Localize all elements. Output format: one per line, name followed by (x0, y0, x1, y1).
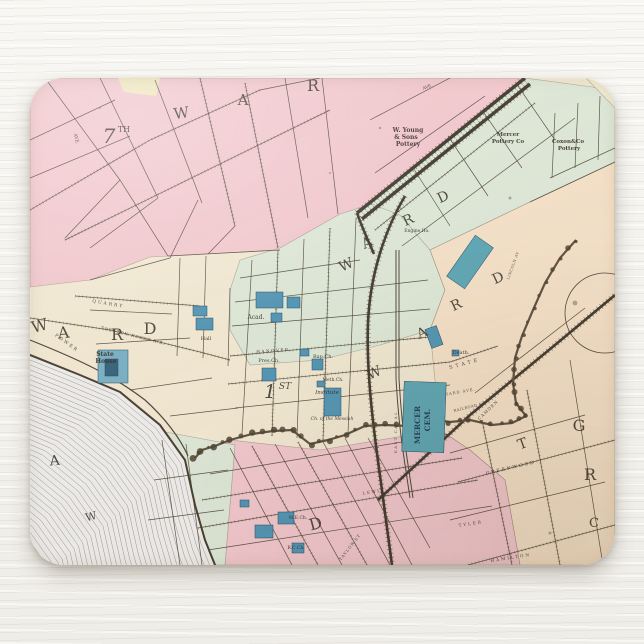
place-label: Pottery (558, 146, 581, 152)
ward-letter: R (584, 465, 597, 484)
product-photo-scene: { "scene": {"surface": "white-painted-wo… (0, 0, 644, 644)
place-label: Mercer (497, 132, 519, 138)
public-building (240, 500, 249, 507)
place-label: Pres.Ch. (258, 358, 280, 364)
ward-letter: W (172, 103, 190, 123)
place-label: Meth.Ch. (322, 377, 344, 383)
ward-letter: C (589, 516, 599, 531)
place-label: CEM. (423, 409, 432, 432)
public-building (300, 349, 309, 356)
public-building (262, 368, 276, 381)
ward-letter: D (144, 319, 157, 338)
street-label: EAST CANAL (393, 411, 398, 453)
ward-letter: W (30, 314, 51, 337)
public-building (271, 313, 282, 322)
public-building (255, 525, 273, 538)
public-building (312, 359, 323, 370)
place-label: M.E.Ch. (289, 515, 308, 521)
place-label: Bap.Ch. (313, 354, 333, 360)
place-label: W. Young (392, 127, 424, 134)
vintage-ward-map: AVE.QUARRYPOWERTRENTON HORSE R.R.HANOVER… (30, 78, 615, 565)
place-label: MERCER (413, 405, 422, 444)
place-label: Acad. (246, 314, 264, 321)
place-label: State (96, 351, 114, 358)
ward-letter: R (307, 78, 320, 95)
ward-letter: R (111, 325, 124, 344)
ward-letter: ST (279, 382, 292, 392)
ward-letter: TH (118, 125, 130, 134)
ward-letter: A (237, 91, 249, 109)
mousepad: AVE.QUARRYPOWERTRENTON HORSE R.R.HANOVER… (30, 78, 615, 565)
public-building (287, 297, 300, 308)
place-label: Hall (201, 336, 212, 342)
ward-letter: G (573, 416, 586, 435)
place-label: House (95, 358, 116, 365)
public-building (196, 318, 213, 330)
place-label: Ch. of the Messiah (311, 416, 354, 422)
place-label: Pottery (396, 141, 421, 148)
place-label: Death. (453, 350, 470, 356)
ward-letter: 1 (264, 381, 276, 403)
place-label: Pottery Co (492, 139, 525, 145)
place-label: Institute (314, 390, 339, 396)
public-building (256, 292, 283, 308)
place-label: & Sons (394, 134, 418, 141)
public-building (193, 306, 207, 316)
place-label: R.C.Ch. (287, 545, 305, 551)
ward-letter: 7 (103, 124, 116, 148)
place-label: Coxon&Co (552, 139, 584, 145)
ward-letter: A (56, 323, 71, 343)
